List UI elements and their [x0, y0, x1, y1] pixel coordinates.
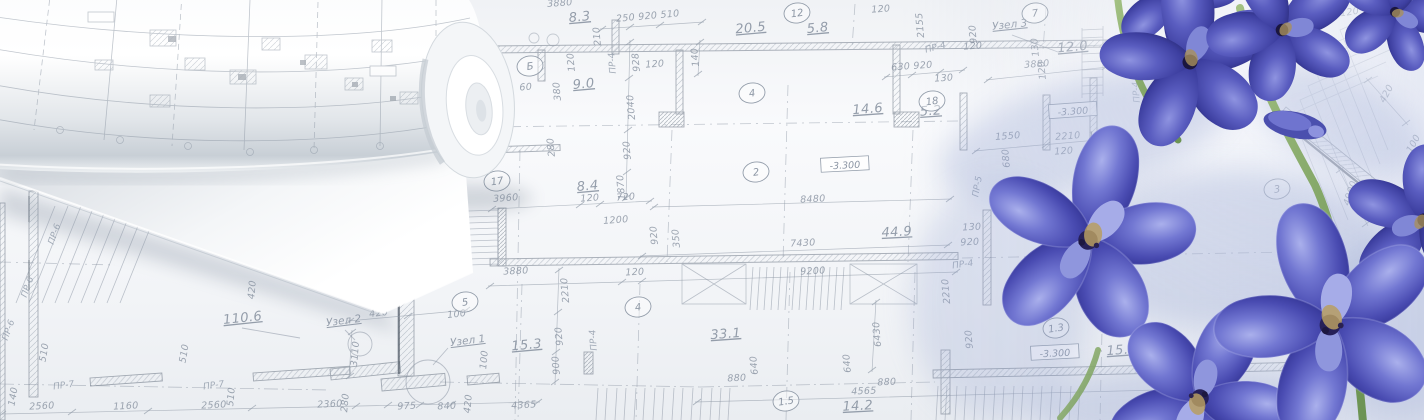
dimension-label: 420	[462, 394, 475, 414]
dimension-label: 975	[397, 401, 417, 413]
svg-text:1.5: 1.5	[777, 395, 794, 408]
dimension-label: 3880	[503, 265, 529, 277]
area-label: 15.3	[511, 337, 543, 355]
dimension-label: 640	[841, 353, 854, 373]
dimension-label: 510	[225, 387, 238, 407]
dimension-label: 2560	[201, 399, 227, 411]
dimension-label: 640	[748, 355, 761, 375]
dimension-label: 2560	[29, 400, 55, 412]
area-label: 9.0	[572, 76, 595, 93]
area-label: 20.5	[735, 20, 767, 38]
dimension-label: 920	[648, 225, 661, 245]
area-label: 33.1	[710, 326, 742, 343]
dimension-label: 920	[621, 140, 634, 160]
dimension-label: 2040	[625, 94, 638, 120]
dimension-label: 350	[670, 228, 683, 248]
dimension-label: 2210	[559, 277, 572, 303]
dimension-label: 4565	[851, 386, 877, 398]
dimension-label: 1200	[603, 214, 629, 227]
paper-roll	[0, 0, 484, 173]
dimension-label: 900	[550, 355, 563, 375]
dimension-label: 60	[519, 82, 532, 94]
area-label: 8.4	[576, 178, 599, 195]
area-label: 5.8	[806, 20, 829, 37]
svg-text:12: 12	[790, 8, 804, 21]
elevation-mark: -3.300	[821, 156, 870, 173]
dimension-label: 140	[689, 47, 702, 67]
dimension-label: 6430	[871, 321, 884, 347]
area-label: 14.6	[852, 101, 884, 118]
dimension-label: 1870	[615, 174, 628, 200]
dimension-label: 880	[727, 373, 747, 385]
area-label: 14.2	[842, 398, 873, 415]
dimension-label: 100	[478, 350, 491, 370]
dimension-label: 120	[625, 267, 645, 279]
dimension-label: 3110	[349, 341, 362, 367]
dimension-label: 4365	[511, 399, 537, 411]
dimension-label: 120	[645, 58, 665, 70]
dimension-label: 840	[437, 401, 457, 413]
dimension-label: 120	[871, 3, 891, 15]
dimension-label: 120	[565, 52, 578, 72]
area-label: 8.3	[568, 9, 591, 26]
dimension-label: 280	[545, 137, 558, 157]
wall-panel-tag: ПР-4	[588, 329, 600, 351]
dimension-label: 210	[591, 26, 604, 46]
dimension-label: 1160	[113, 400, 139, 412]
dimension-label: 8480	[800, 193, 826, 205]
dimension-label: 7430	[790, 237, 816, 249]
wall-panel-tag: ПР-4	[607, 52, 619, 74]
dimension-label: 920	[553, 326, 566, 346]
dimension-label: 380	[551, 81, 564, 101]
dimension-label: 880	[877, 377, 897, 389]
dimension-label: 280	[339, 393, 352, 413]
dimension-label: 9200	[800, 265, 826, 277]
banner-scene: 3880250 920 510120120120630 920130396012…	[0, 0, 1424, 420]
blueprint-hero-banner: 3880250 920 510120120120630 920130396012…	[0, 0, 1424, 420]
svg-text:-3.300: -3.300	[829, 160, 860, 173]
dimension-label: 928	[630, 52, 643, 72]
